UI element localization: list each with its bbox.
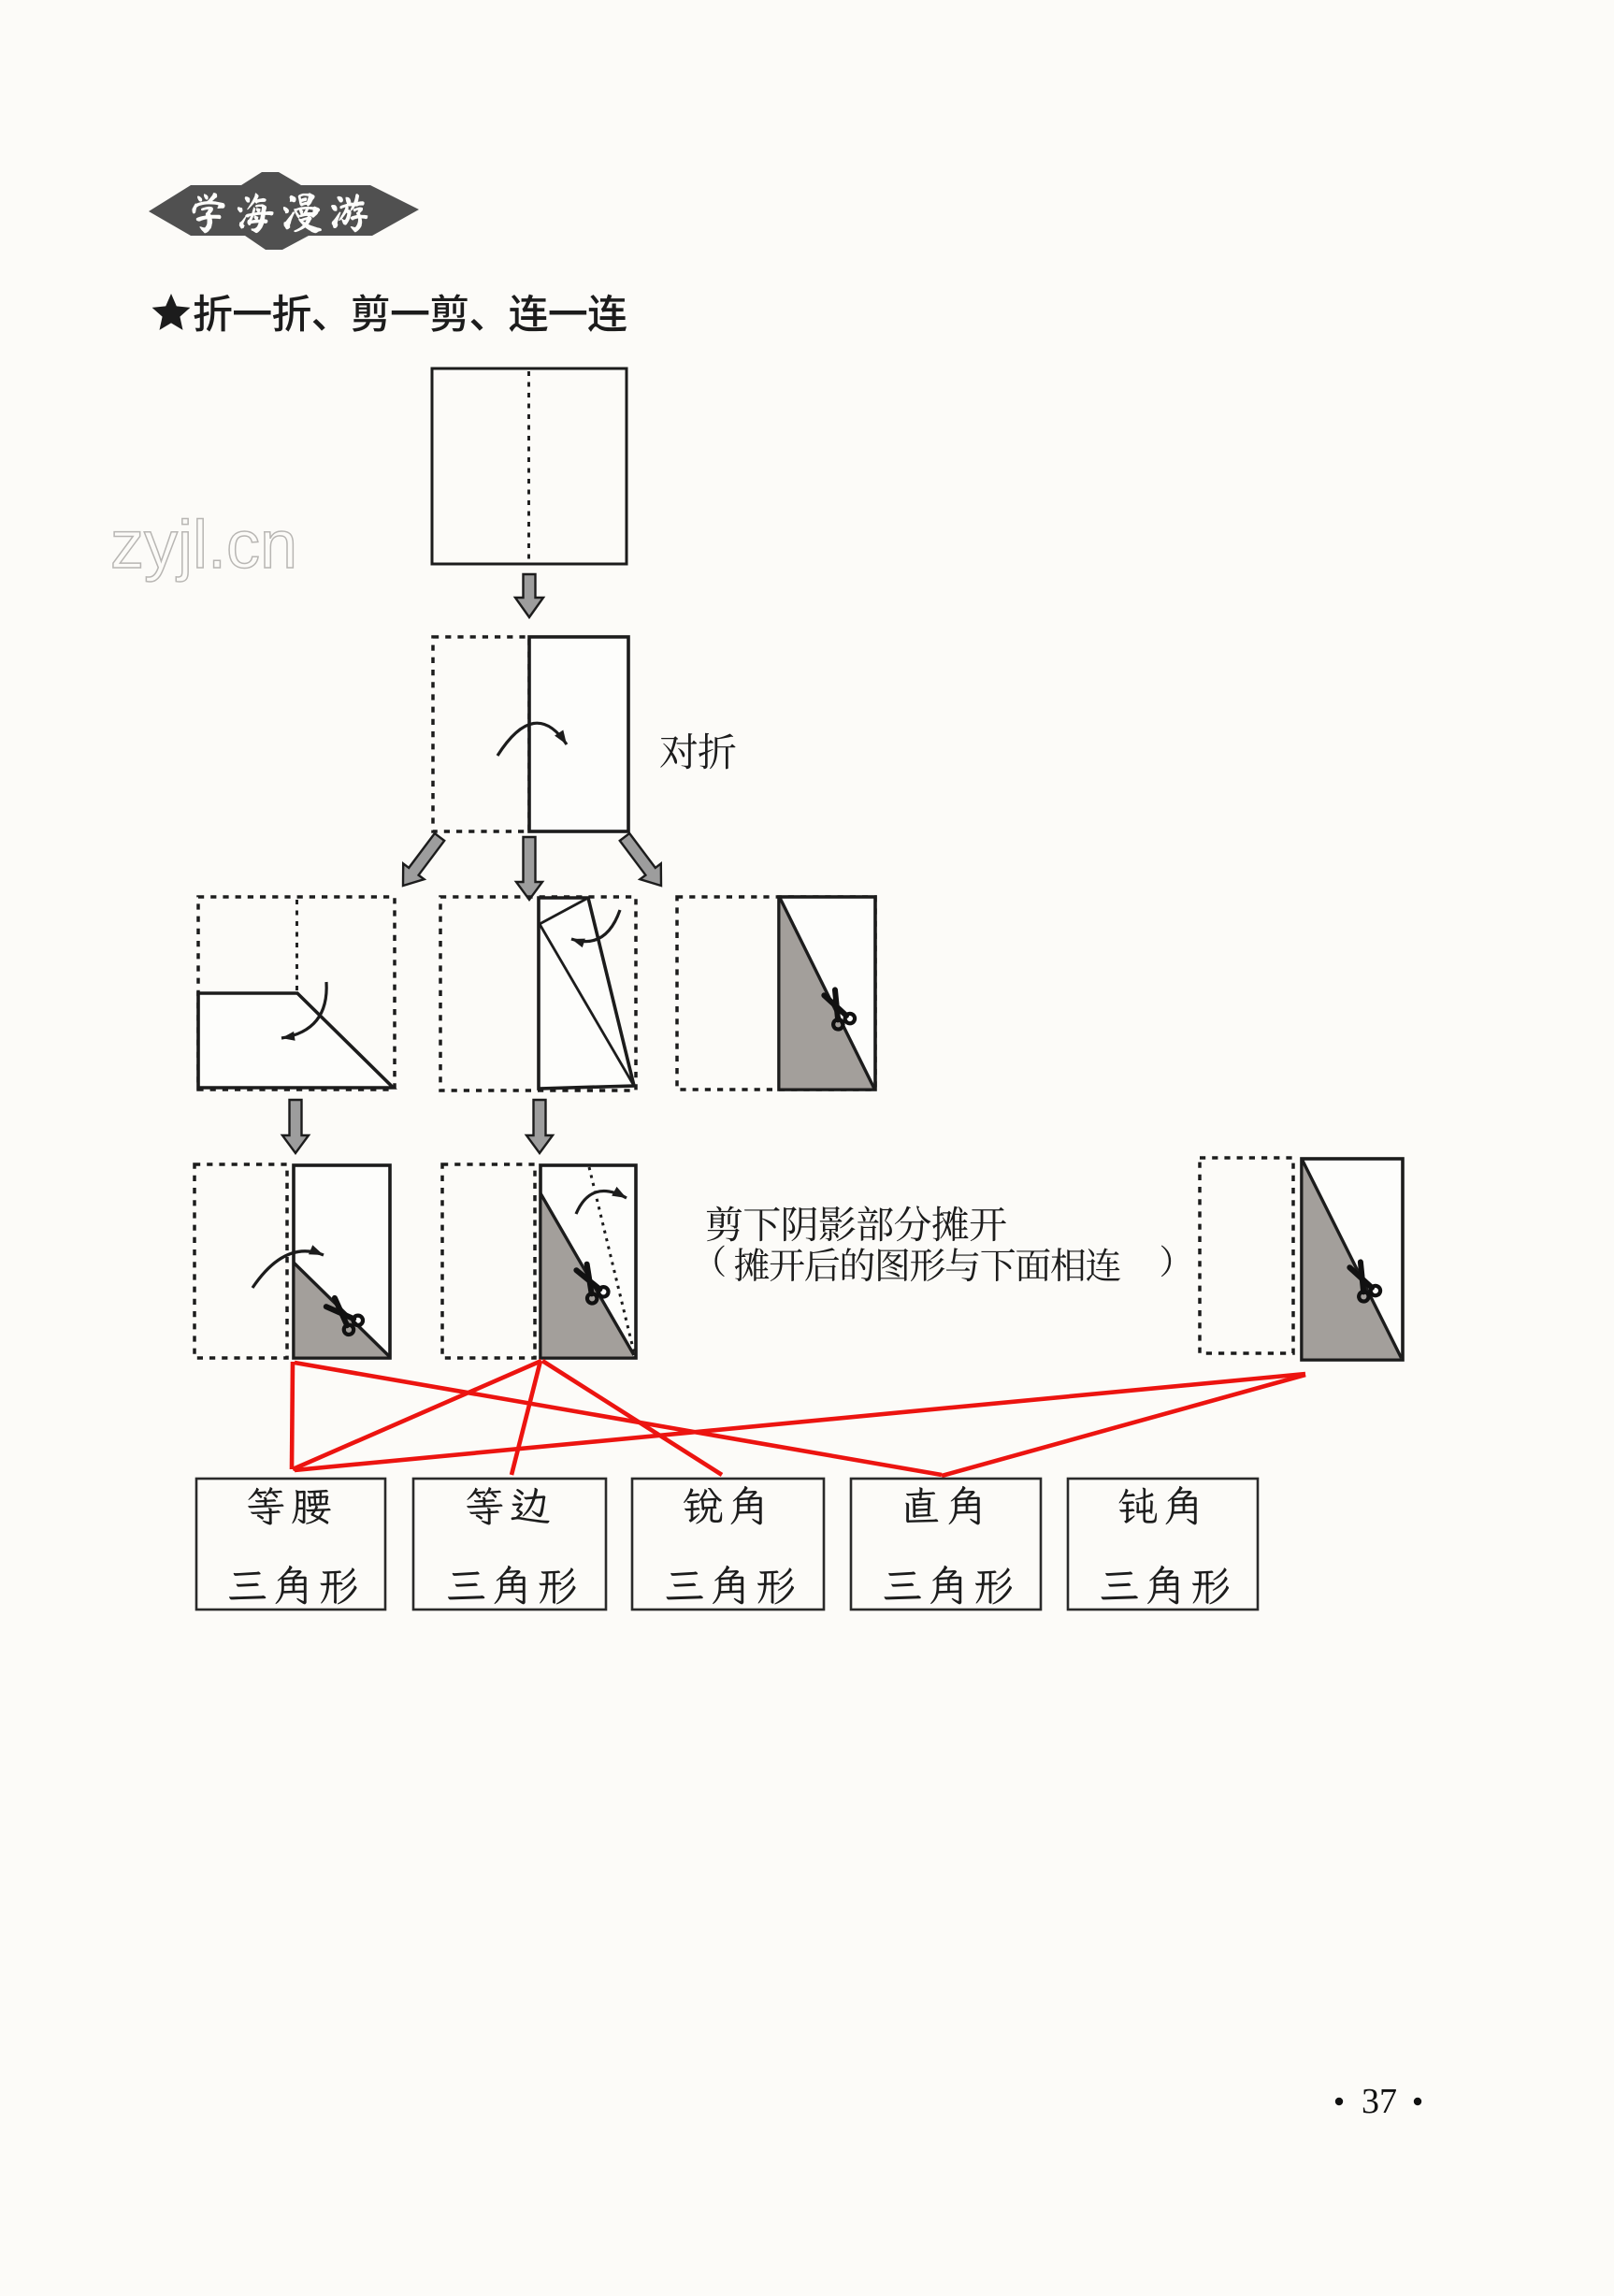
svg-text:zyjl.cn: zyjl.cn	[110, 508, 297, 583]
svg-text:37: 37	[1362, 2082, 1397, 2121]
